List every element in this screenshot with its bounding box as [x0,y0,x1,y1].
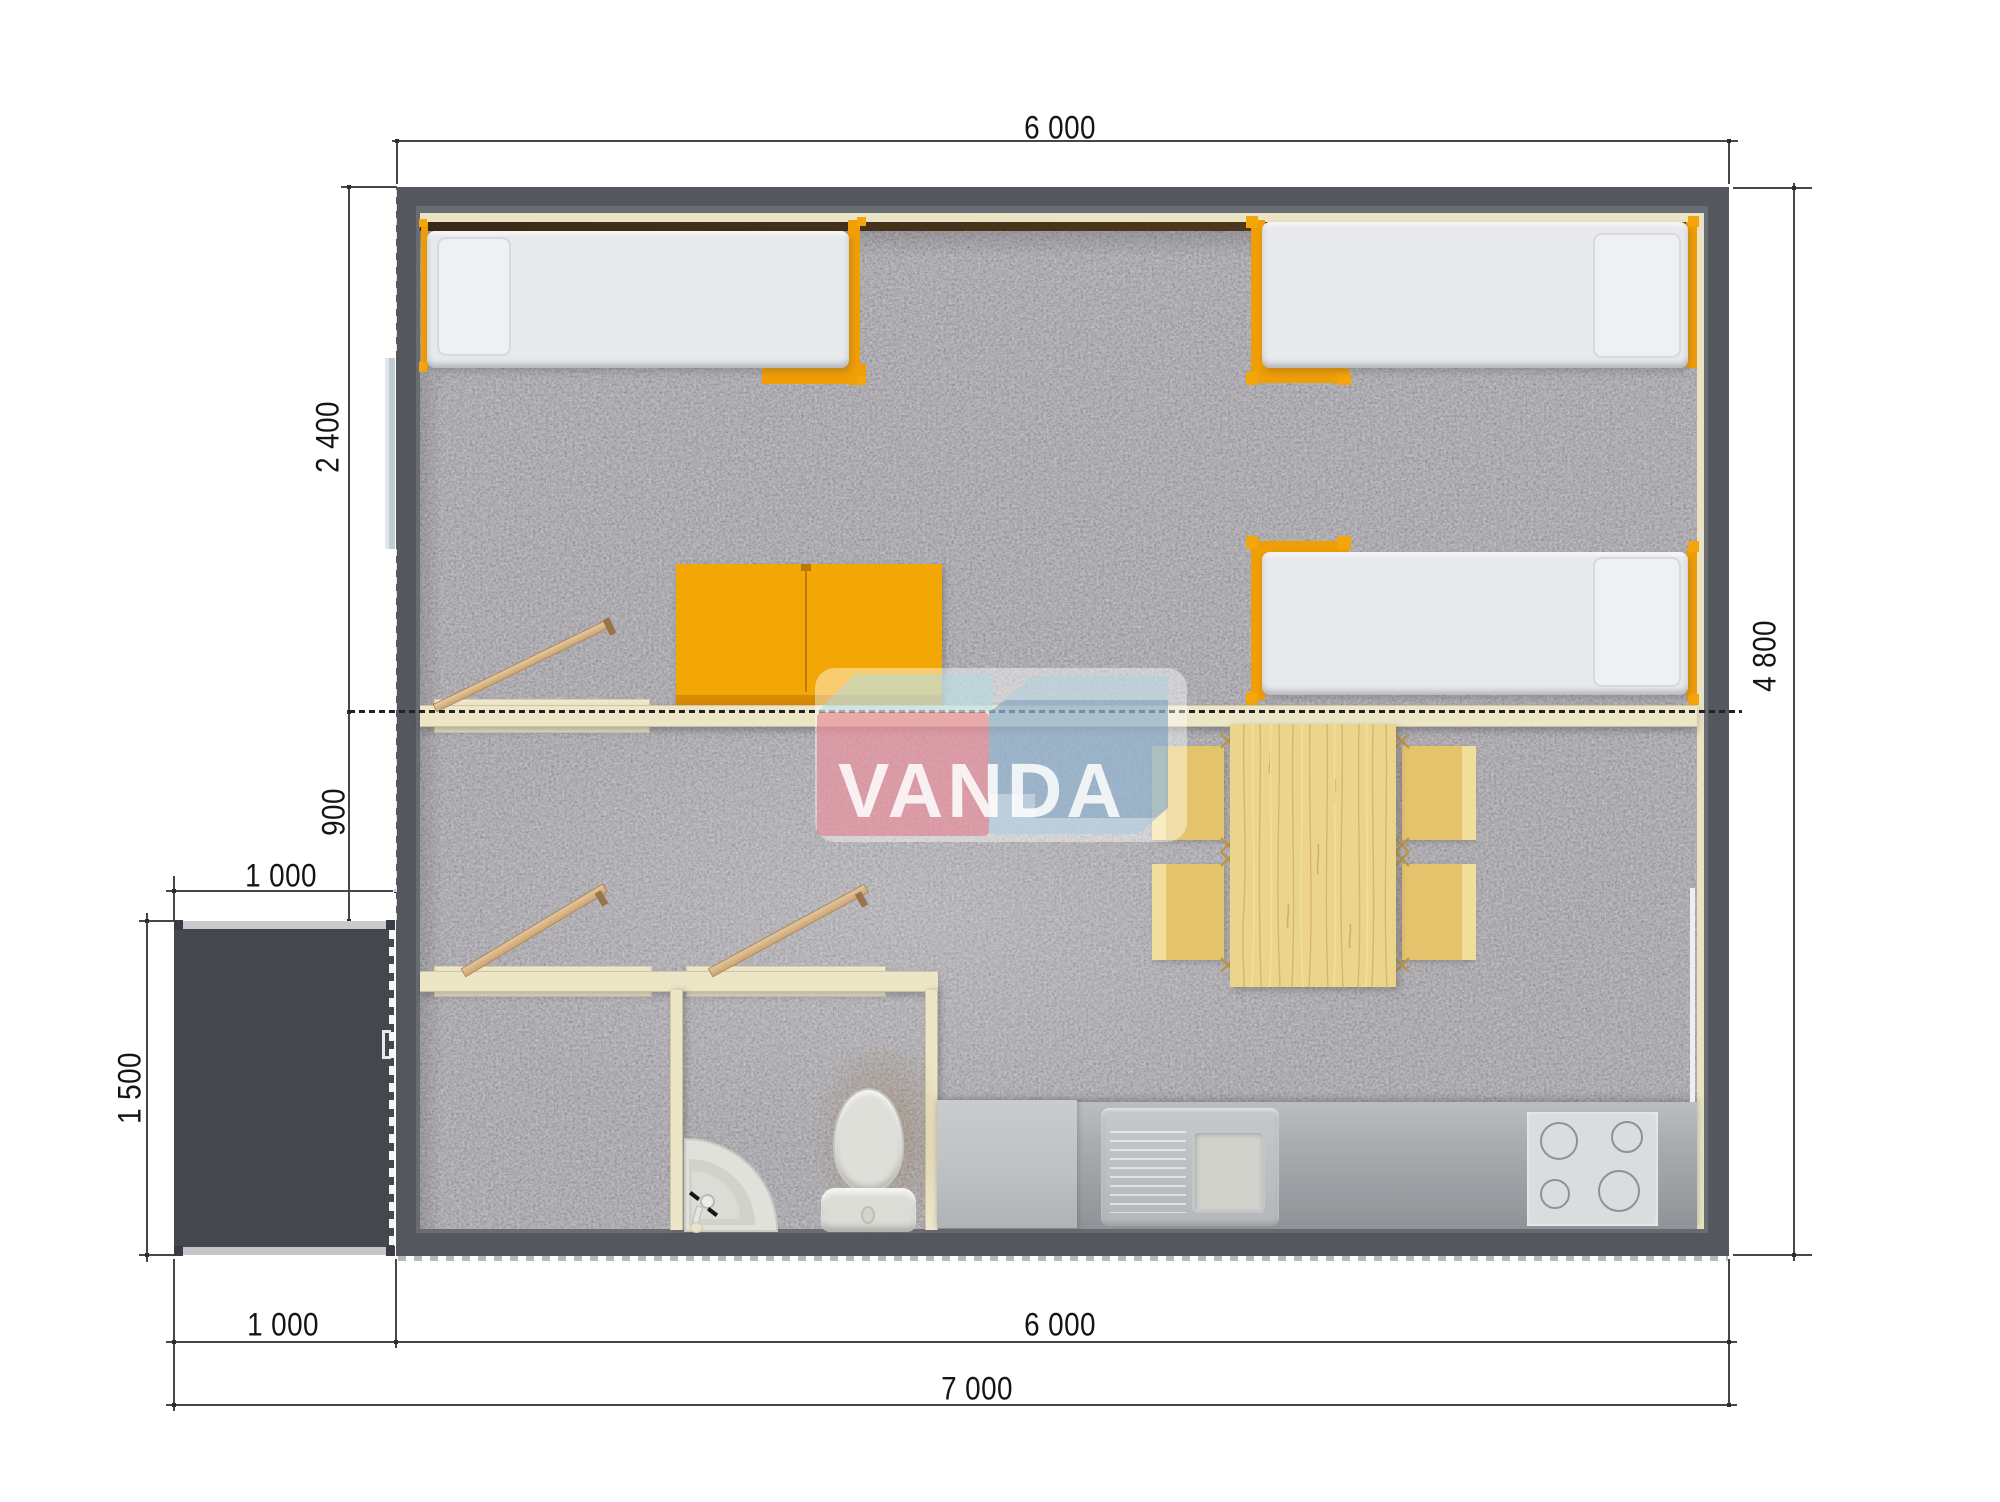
svg-text:VANDA: VANDA [838,748,1126,834]
